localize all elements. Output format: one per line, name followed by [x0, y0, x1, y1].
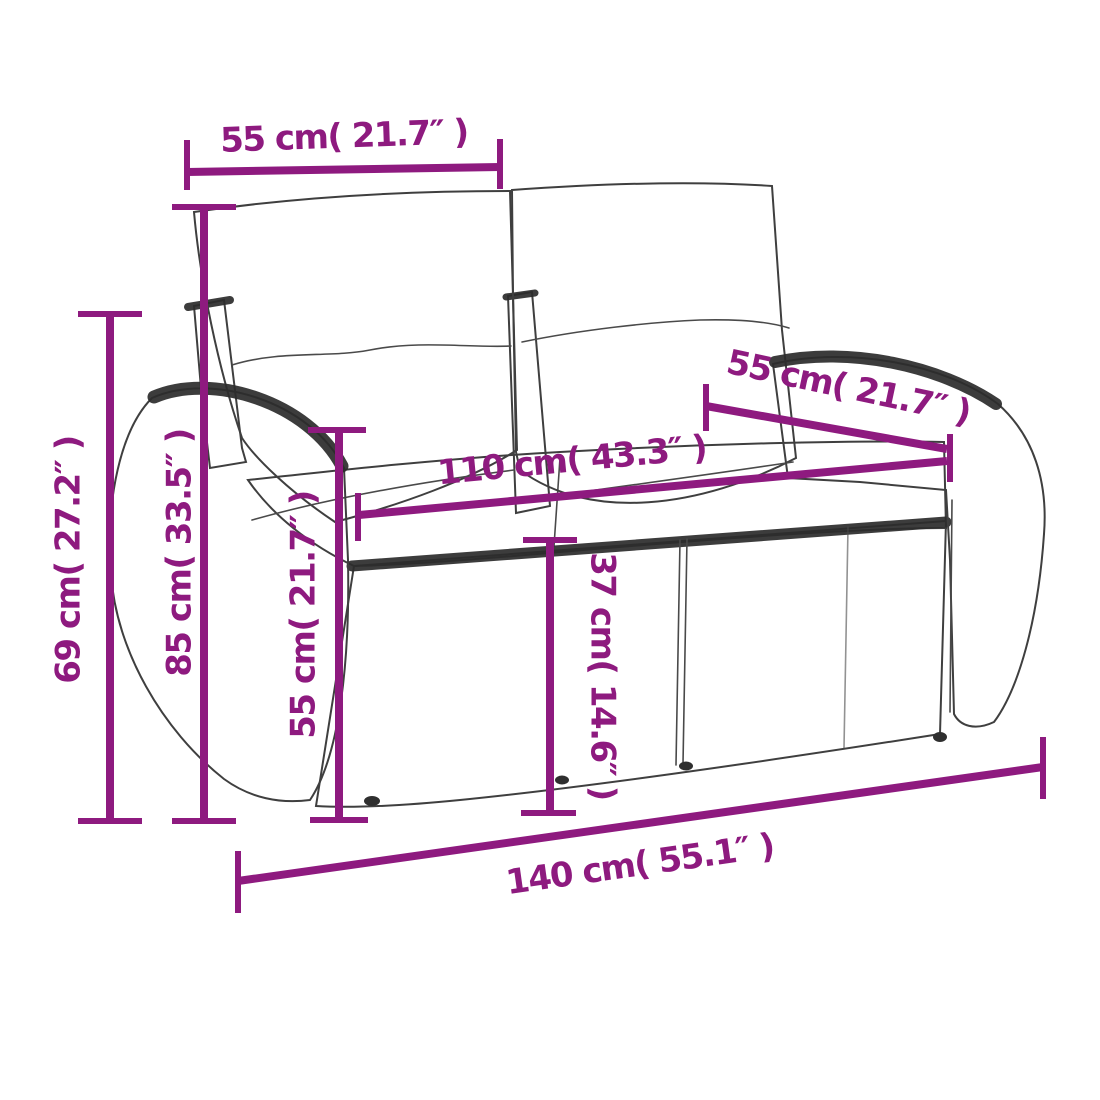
dimension-label-overall-height: 69 cm( 27.2″ ) [49, 436, 89, 684]
sofa-foot [364, 796, 380, 806]
sofa-foot [679, 762, 693, 771]
seat-base-top-band [352, 522, 946, 566]
sofa-foot [933, 732, 947, 742]
armrest-right-inner-edge [950, 500, 952, 712]
sofa-dimension-drawing: 55 cm( 21.7″ ) 85 cm( 33.5″ ) 69 cm( 27.… [0, 0, 1100, 1100]
dimension-label-seat-width-top: 55 cm( 21.7″ ) [220, 112, 469, 161]
back-frame-middle-cap [506, 293, 535, 297]
dimension-seat-height: 37 cm( 14.6″ ) [521, 540, 623, 813]
dimension-label-overall-depth: 85 cm( 33.5″ ) [160, 429, 200, 677]
seat-base-seam-right [844, 527, 848, 748]
dimension-overall-width: 140 cm( 55.1″ ) [238, 737, 1043, 913]
dimension-overall-height: 69 cm( 27.2″ ) [49, 314, 143, 821]
dimension-diagram: 55 cm( 21.7″ ) 85 cm( 33.5″ ) 69 cm( 27.… [0, 0, 1100, 1100]
dimension-label-back-height: 55 cm( 21.7″ ) [284, 491, 324, 739]
dimension-seat-width-top: 55 cm( 21.7″ ) [187, 112, 500, 190]
back-cushion-left-crease [232, 345, 511, 365]
sofa-foot [555, 776, 569, 785]
back-post-left-cap [188, 300, 230, 307]
dimension-back-height: 55 cm( 21.7″ ) [284, 430, 369, 820]
seat-base-seam [676, 539, 687, 765]
dimension-label-seat-height: 37 cm( 14.6″ ) [583, 552, 623, 800]
back-cushion-right-crease [522, 320, 789, 342]
